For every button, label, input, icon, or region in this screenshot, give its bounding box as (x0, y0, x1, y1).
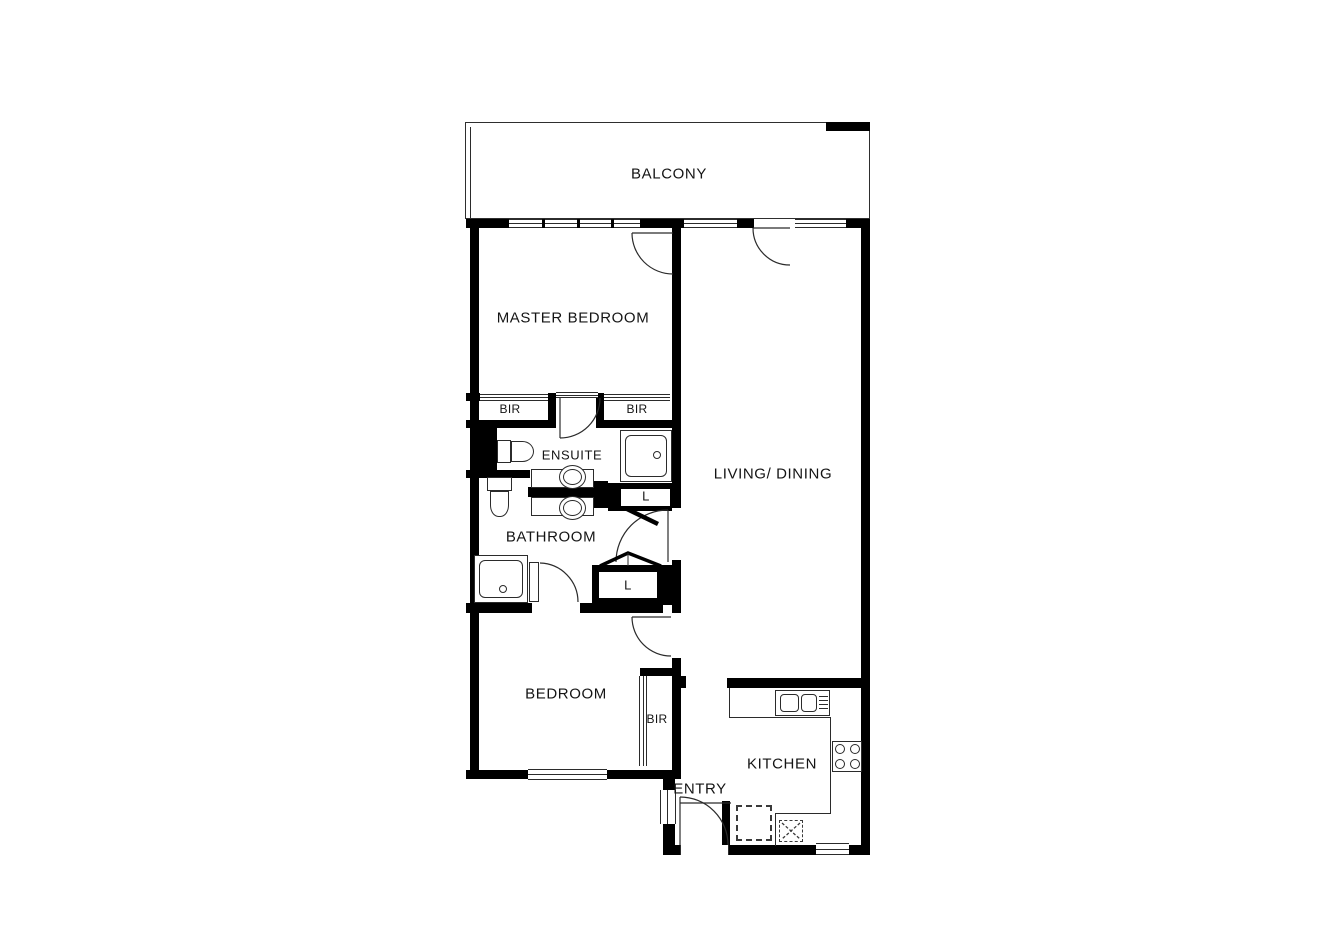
bathroom-door-panel (529, 562, 539, 602)
balcony-window-master-mullion-3 (611, 219, 614, 228)
balcony-window-living-b (795, 219, 846, 228)
top-wall-seg-c (737, 219, 754, 228)
bathroom-toilet-bowl (490, 491, 509, 517)
balcony-parapet-cap (826, 122, 870, 131)
floorplan-canvas: BALCONY MASTER BEDROOM LIVING/ DINING BI… (0, 0, 1338, 946)
balcony-window-living-b-mid-line (795, 223, 846, 224)
kitchen-window-mid-line (816, 849, 849, 850)
balcony-window-living-a (684, 219, 737, 228)
ensuite-toilet-tank (497, 440, 511, 463)
room-label-linen-lower: L (624, 578, 632, 593)
cooktop-burner-1 (835, 744, 845, 754)
bir-right-front-mid-line (604, 397, 670, 398)
counter-edge-return (775, 813, 831, 814)
bedroom-door-arc (632, 617, 671, 656)
entry-stub-wall (722, 801, 730, 845)
kitchen-sink-drainer (819, 696, 828, 711)
room-label-balcony: BALCONY (631, 166, 707, 183)
bottom-wall-a (663, 845, 680, 855)
hall-door-arc (616, 510, 668, 562)
bathroom-bedroom-wall-b (580, 603, 663, 613)
counter-edge-front (729, 717, 831, 718)
counter-edge-west (729, 688, 730, 718)
balcony-window-master-mullion-1 (542, 219, 545, 228)
living-balcony-door-arc (753, 228, 790, 265)
bir-right-front (604, 394, 670, 401)
ensuite-door-head (556, 392, 598, 398)
bir-bedroom-top-wall (640, 668, 672, 676)
room-label-bir-bedroom: BIR (647, 712, 668, 726)
bir-right-bottom-wall (604, 420, 673, 428)
bir-left-front (480, 394, 548, 401)
bathroom-shower-drain (499, 585, 507, 593)
east-wall (861, 219, 870, 855)
bedroom-bottom-wall-b (607, 770, 676, 779)
ensuite-shower-drain (653, 451, 661, 459)
balcony-window-master (509, 219, 640, 228)
balcony-window-master-mullion-2 (577, 219, 580, 228)
vanity-wall (528, 487, 600, 497)
basin-ensuite-inner (563, 469, 582, 485)
fridge-space (736, 805, 772, 841)
ensuite-door-head-mid-line (556, 395, 598, 396)
master-balcony-door-arc (632, 233, 673, 274)
west-wall (470, 219, 479, 779)
room-label-bathroom: BATHROOM (506, 529, 596, 546)
bedroom-window-mid-line (528, 774, 607, 775)
appliance-space (779, 820, 803, 842)
bir-row-cap (466, 393, 480, 401)
bathroom-door-arc (540, 563, 578, 602)
balcony-window-master-mid-line (509, 223, 640, 224)
entry-door-arc (680, 797, 728, 845)
cooktop-burner-3 (835, 759, 845, 769)
bedroom-window (528, 769, 607, 780)
ensuite-nib-wall (479, 425, 497, 472)
living-kitchen-junction (672, 676, 686, 688)
room-label-ensuite: ENSUITE (542, 448, 603, 463)
room-label-linen-upper: L (642, 489, 650, 504)
balcony-inner-line (470, 127, 471, 218)
room-label-master-bedroom: MASTER BEDROOM (497, 310, 650, 327)
living-divider-mid (672, 560, 681, 613)
room-label-kitchen: KITCHEN (747, 756, 817, 773)
bedroom-bottom-wall-a (466, 770, 528, 779)
kitchen-sink-bowl-right (801, 694, 817, 712)
bir-right-post (596, 393, 604, 428)
room-label-living-dining: LIVING/ DINING (714, 466, 832, 483)
ensuite-toilet-bowl (511, 441, 534, 462)
ensuite-door-arc (560, 398, 600, 438)
bottom-wall-b (729, 845, 816, 855)
bir-left-front-mid-line (480, 397, 548, 398)
counter-edge-east (830, 717, 831, 814)
room-label-bir-left: BIR (500, 402, 521, 416)
entry-window-mid-line (667, 790, 668, 824)
living-divider-north (672, 227, 681, 508)
bathroom-toilet-tank (487, 477, 512, 491)
hall-post (594, 481, 608, 508)
bathroom-bedroom-wall-a (466, 603, 532, 613)
entry-door-opening (680, 845, 729, 855)
kitchen-window (816, 843, 849, 855)
balcony-window-living-a-mid-line (684, 223, 737, 224)
basin-bathroom-inner (563, 500, 582, 516)
room-label-bir-right: BIR (627, 402, 648, 416)
kitchen-sink-bowl-left (780, 694, 799, 712)
room-label-bedroom: BEDROOM (525, 686, 607, 703)
kitchen-top-wall (727, 678, 861, 688)
bottom-wall-c (849, 845, 870, 855)
bir-bedroom-sliding-front-mid-line (643, 676, 644, 766)
cooktop-burner-4 (850, 759, 860, 769)
room-label-entry: ENTRY (673, 781, 727, 798)
counter-edge-return-v (775, 813, 776, 846)
cooktop-burner-2 (850, 744, 860, 754)
